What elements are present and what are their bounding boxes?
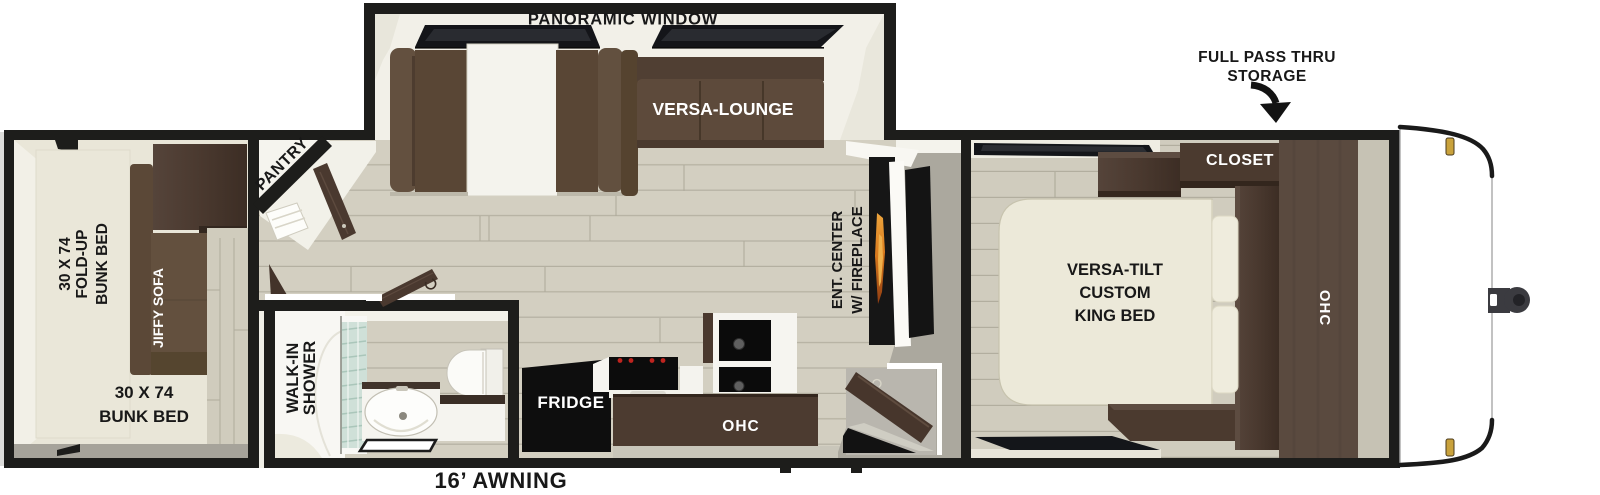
svg-text:VERSA-LOUNGE: VERSA-LOUNGE [653,99,794,119]
svg-text:W/ FIREPLACE: W/ FIREPLACE [849,206,866,314]
svg-text:OHC: OHC [722,418,759,435]
svg-text:30 X 74: 30 X 74 [115,383,174,402]
svg-text:KING BED: KING BED [1075,307,1156,325]
svg-text:ENT. CENTER: ENT. CENTER [829,211,846,310]
svg-text:30 X 74: 30 X 74 [57,237,74,291]
svg-text:BUNK BED: BUNK BED [94,223,111,305]
svg-text:CLOSET: CLOSET [1206,152,1274,169]
svg-text:OHC: OHC [1316,290,1333,326]
svg-text:SHOWER: SHOWER [301,341,319,415]
svg-text:PANORAMIC WINDOW: PANORAMIC WINDOW [528,11,718,29]
svg-text:FOLD-UP: FOLD-UP [74,230,91,299]
svg-text:FRIDGE: FRIDGE [537,393,604,412]
svg-text:CUSTOM: CUSTOM [1079,284,1150,302]
svg-text:VERSA-TILT: VERSA-TILT [1067,261,1163,279]
svg-text:16’ AWNING: 16’ AWNING [434,468,567,493]
svg-text:STORAGE: STORAGE [1227,68,1306,85]
svg-text:WALK-IN: WALK-IN [284,343,302,414]
svg-text:JIFFY SOFA: JIFFY SOFA [150,268,166,348]
svg-text:FULL PASS THRU: FULL PASS THRU [1198,49,1336,66]
svg-text:BUNK BED: BUNK BED [99,407,189,426]
